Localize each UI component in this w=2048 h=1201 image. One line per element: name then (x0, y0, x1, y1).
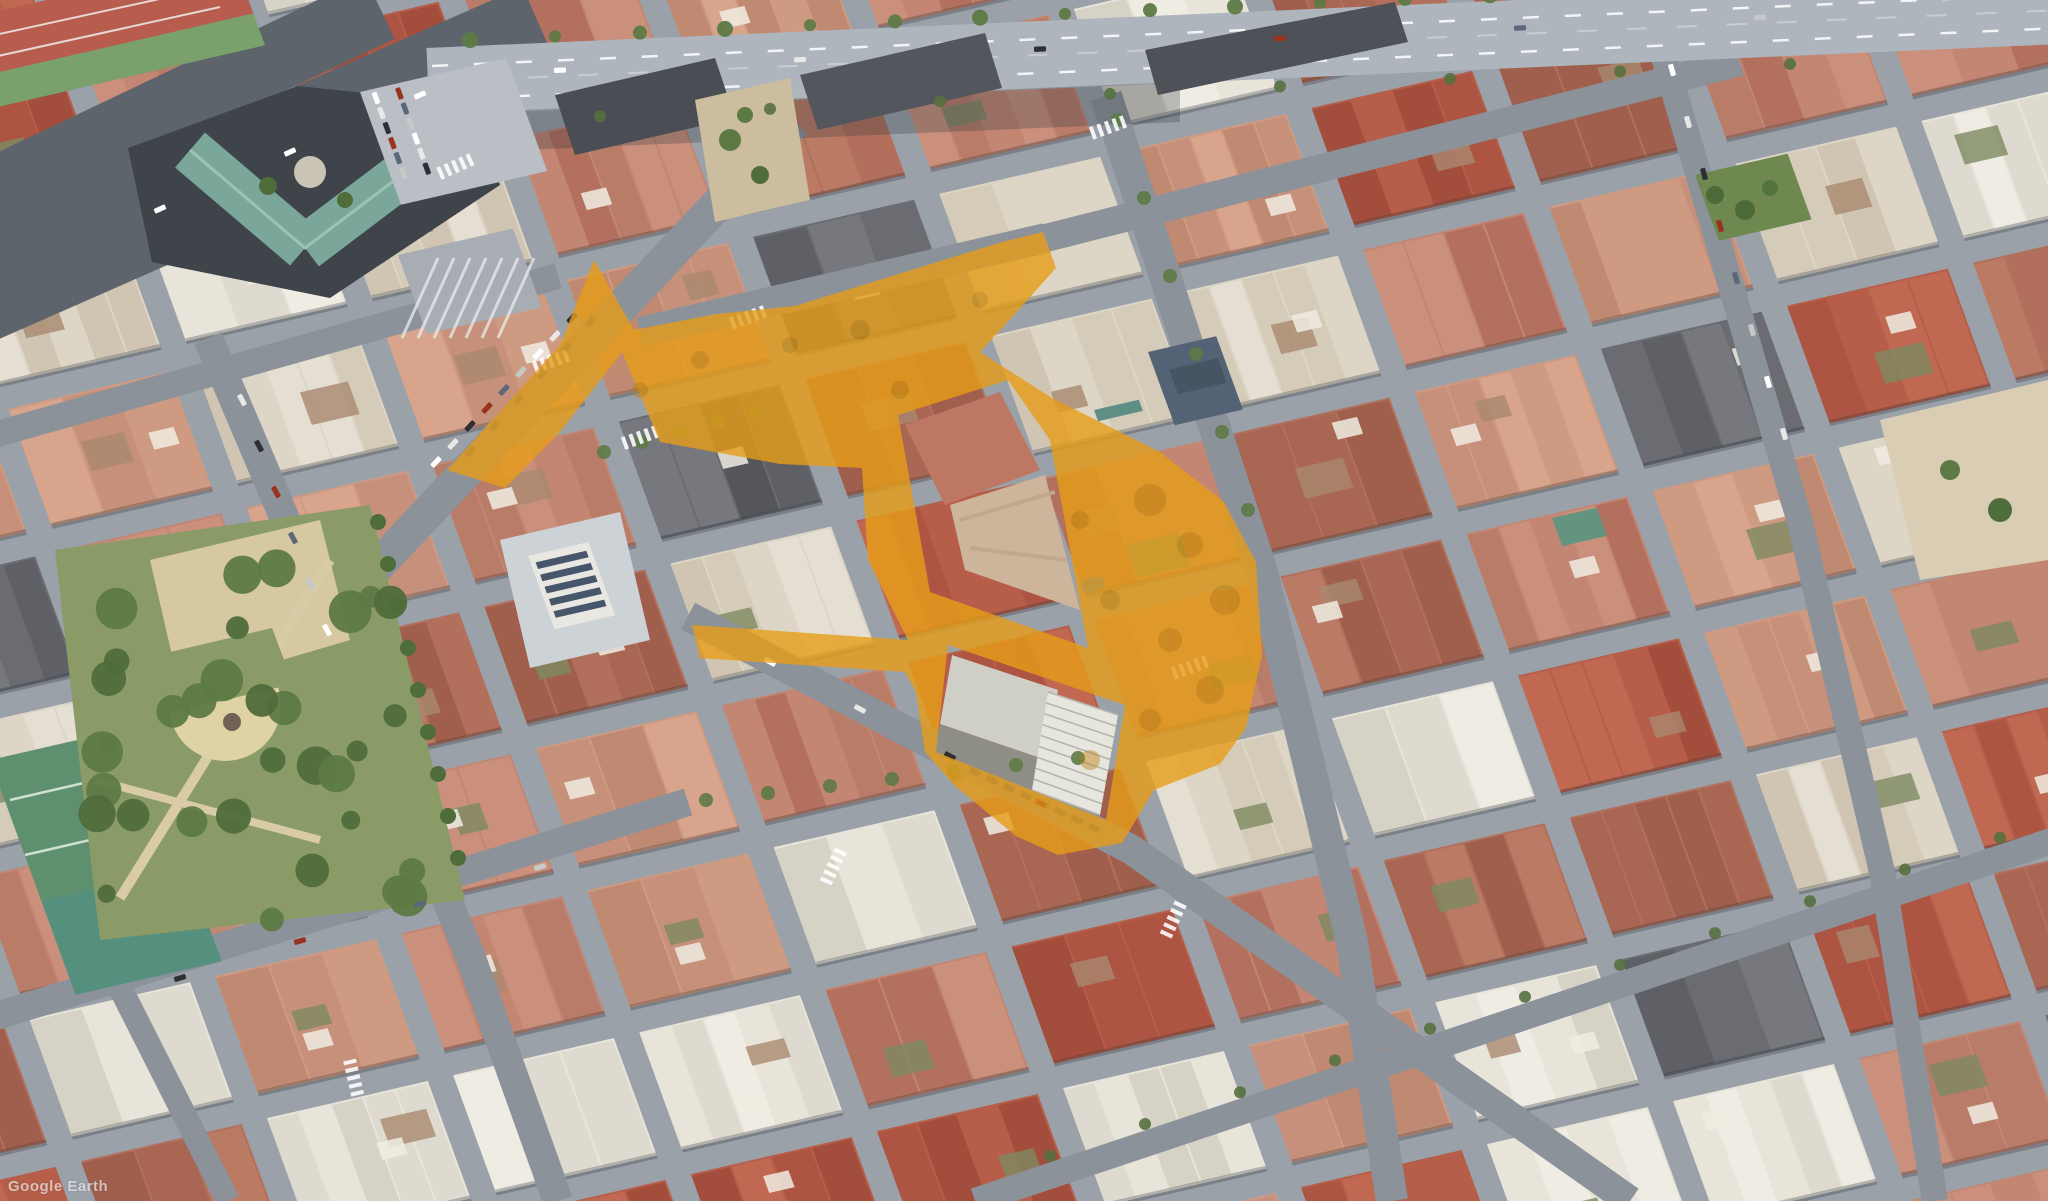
aerial-map-canvas[interactable]: Google Earth (0, 0, 2048, 1201)
watermark-google-earth: Google Earth (8, 1178, 108, 1195)
satellite-imagery (0, 0, 2048, 1201)
